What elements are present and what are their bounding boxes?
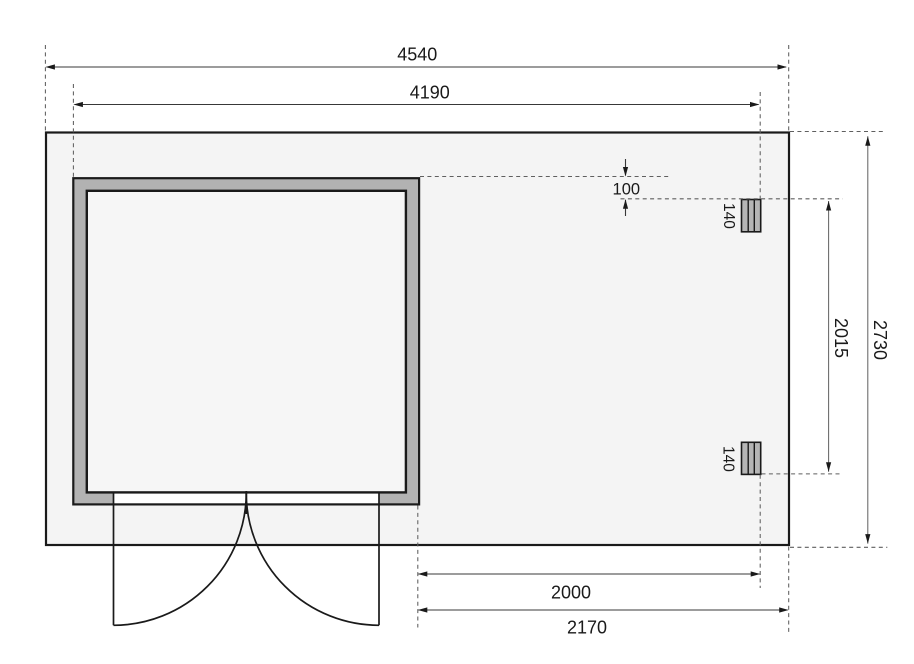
svg-text:2730: 2730: [870, 320, 890, 360]
svg-text:140: 140: [719, 446, 736, 472]
svg-text:140: 140: [720, 203, 737, 229]
svg-text:4540: 4540: [397, 45, 437, 65]
svg-text:2170: 2170: [567, 618, 607, 638]
svg-text:100: 100: [613, 180, 641, 198]
svg-text:4190: 4190: [410, 82, 450, 102]
svg-text:2000: 2000: [551, 583, 591, 603]
svg-text:2015: 2015: [831, 318, 851, 358]
